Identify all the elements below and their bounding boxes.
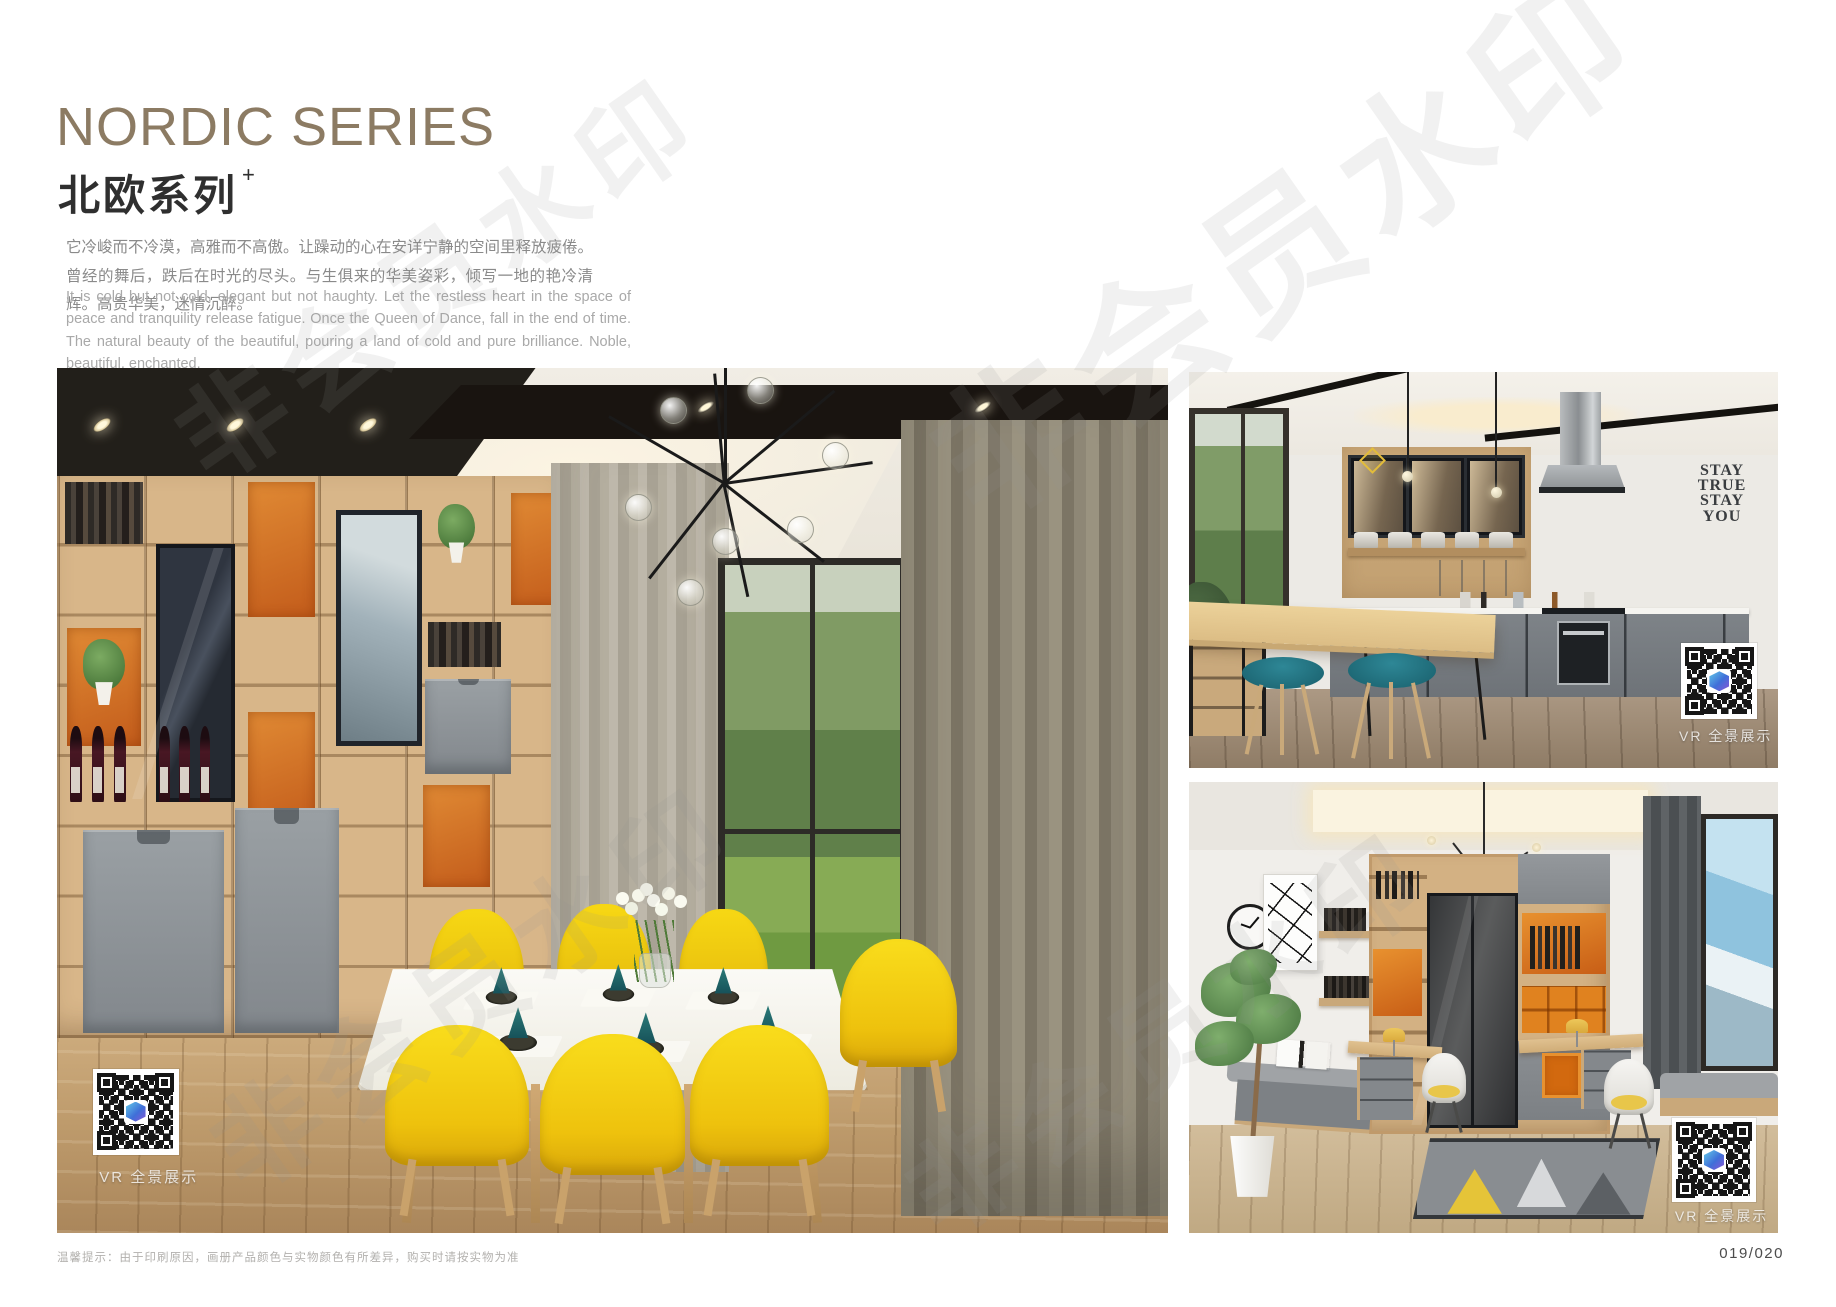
jar xyxy=(1354,532,1378,548)
desk-lamp xyxy=(1383,1028,1405,1042)
jar xyxy=(1388,532,1412,548)
kitchen-photo: STAY TRUE STAY YOU xyxy=(1189,372,1778,768)
leaning-picture-frames xyxy=(1276,1039,1331,1070)
window-seat-cushion xyxy=(1660,1073,1778,1100)
qr-finder-icon xyxy=(1685,647,1704,666)
glass-bulb-icon xyxy=(625,494,652,521)
window-seat-base xyxy=(1660,1098,1778,1116)
table-leg xyxy=(531,1084,540,1223)
gray-upper-cabinet xyxy=(1518,854,1610,904)
wall-art-text: STAY TRUE STAY YOU xyxy=(1684,463,1761,524)
pendant-bulb-icon xyxy=(1491,487,1502,498)
stool-leg xyxy=(1280,684,1284,755)
stool-leg xyxy=(1411,682,1431,758)
page-title: NORDIC SERIES xyxy=(56,96,495,158)
potted-plant xyxy=(438,504,475,549)
chair-back xyxy=(540,1034,684,1175)
wall-art-line: STAY xyxy=(1684,463,1761,478)
teal-bar-stool xyxy=(1242,657,1324,752)
dining-chair-near xyxy=(385,1025,529,1215)
wine-bottle xyxy=(159,726,170,802)
counter-items xyxy=(1460,592,1637,608)
glass-door xyxy=(1351,458,1406,535)
vr-qr-code xyxy=(93,1069,179,1155)
chair-legs xyxy=(701,1159,818,1216)
spotlight-icon xyxy=(91,418,115,432)
place-setting xyxy=(473,984,530,1008)
jar xyxy=(1489,532,1513,548)
wall-art-line: YOU xyxy=(1684,509,1761,524)
chair-legs xyxy=(850,1060,948,1112)
catalog-page: NORDIC SERIES 北欧系列+ 它冷峻而不冷漠，高雅而不高傲。让躁动的心… xyxy=(0,0,1836,1307)
orange-desk-cube xyxy=(1542,1053,1580,1098)
glass-vase xyxy=(639,953,671,988)
glass-bulb-icon xyxy=(712,528,739,555)
vr-cube-logo-icon xyxy=(124,1100,148,1124)
chandelier-rod xyxy=(608,416,724,485)
dining-room-photo: VR 全景展示 xyxy=(57,368,1168,1233)
vr-panorama-label: VR 全景展示 xyxy=(1675,1206,1768,1226)
chair-back xyxy=(690,1025,829,1166)
vr-cube-logo-icon xyxy=(1707,669,1731,693)
yellow-cushion xyxy=(1611,1095,1647,1109)
mirror-panel xyxy=(336,510,422,746)
place-setting xyxy=(590,981,647,1005)
vr-qr-code xyxy=(1681,643,1757,719)
wine-bottle xyxy=(114,726,126,802)
orange-shelf-cell xyxy=(1373,949,1421,1016)
gray-cabinet-door xyxy=(83,830,224,1032)
desk-lamp xyxy=(1566,1019,1588,1033)
dining-chair-near xyxy=(540,1034,684,1224)
shelf-books xyxy=(1324,976,1368,999)
wine-bottle xyxy=(70,726,82,802)
wall-art-line: TRUE xyxy=(1684,478,1761,493)
wine-bottle xyxy=(179,726,190,802)
chair-back xyxy=(385,1025,529,1166)
glass-bulb-icon xyxy=(822,442,849,469)
white-desk-chair xyxy=(1604,1059,1654,1149)
glass-bulb-icon xyxy=(677,579,704,606)
place-setting xyxy=(695,984,752,1008)
page-number: 019/020 xyxy=(1719,1245,1784,1262)
orange-shelf-cell xyxy=(1522,913,1606,975)
hanging-utensils xyxy=(1430,560,1518,596)
qr-finder-icon xyxy=(1676,1179,1695,1198)
gray-cabinet-door xyxy=(235,808,339,1033)
footer-disclaimer: 温馨提示：由于印刷原因，画册产品颜色与实物颜色有所差异，购买时请按实物为准 xyxy=(57,1249,520,1265)
bookcase-items xyxy=(1376,871,1419,899)
pendant-cord xyxy=(1407,372,1409,475)
spotlight-icon xyxy=(223,418,247,432)
orange-cubby-grid xyxy=(1522,986,1606,1034)
bulb-icon xyxy=(1532,843,1541,852)
orange-shelf-cell xyxy=(423,785,491,886)
spotlight-icon xyxy=(971,401,995,413)
qr-finder-icon xyxy=(1676,1122,1695,1141)
chandelier-stem xyxy=(724,368,727,482)
page-title-cn-text: 北欧系列 xyxy=(58,172,238,219)
range-hood-control xyxy=(1539,487,1624,493)
white-desk-chair xyxy=(1422,1053,1466,1134)
rug-triangle xyxy=(1576,1172,1630,1214)
spotlight-icon xyxy=(356,418,380,432)
yellow-cushion xyxy=(1428,1085,1460,1098)
chair-legs xyxy=(396,1159,517,1216)
dining-chair-near xyxy=(690,1025,829,1215)
white-tulips xyxy=(616,892,629,905)
stool-leg xyxy=(1245,684,1264,755)
jar xyxy=(1421,532,1445,548)
dark-curtain xyxy=(1643,796,1702,1089)
jar xyxy=(1455,532,1479,548)
qr-finder-icon xyxy=(97,1073,116,1092)
wall-shelf xyxy=(1319,998,1375,1005)
wine-bottle xyxy=(200,726,211,802)
stool-leg xyxy=(1351,682,1371,758)
vr-cube-logo-icon xyxy=(1702,1148,1726,1172)
stool-leg xyxy=(1301,684,1320,755)
chair-legs xyxy=(1607,1113,1651,1149)
teal-bar-stool xyxy=(1348,653,1436,756)
wall-art-line: STAY xyxy=(1684,493,1761,508)
qr-finder-icon xyxy=(1735,647,1754,666)
orange-shelf-cell xyxy=(248,482,316,617)
glass-bulb-icon xyxy=(747,377,774,404)
vr-panorama-label: VR 全景展示 xyxy=(1679,726,1772,746)
vr-panorama-label: VR 全景展示 xyxy=(99,1166,198,1187)
rug-triangle xyxy=(1517,1159,1566,1208)
intro-paragraph-en: It is cold but not cold, elegant but not… xyxy=(66,286,631,376)
qr-finder-icon xyxy=(155,1073,174,1092)
study-room-photo: VR 全景展示 xyxy=(1189,782,1778,1233)
rug-triangle xyxy=(1447,1169,1501,1214)
glass-bulb-icon xyxy=(787,516,814,543)
chair-legs xyxy=(1424,1101,1463,1133)
stool-leg xyxy=(1389,682,1393,759)
books-row xyxy=(65,482,143,544)
wine-bottles xyxy=(70,726,143,802)
potted-plant xyxy=(83,639,125,690)
chair-legs xyxy=(552,1167,673,1224)
open-shelf xyxy=(1348,548,1525,556)
shelf-books xyxy=(1530,926,1581,969)
desk-drawer-pedestal xyxy=(1357,1057,1413,1120)
books-row xyxy=(428,622,501,667)
bulb-icon xyxy=(1427,836,1436,845)
chandelier-rod xyxy=(648,483,725,580)
pendant-cord xyxy=(1495,372,1497,491)
flower-vase xyxy=(613,896,696,983)
page-title-cn: 北欧系列+ xyxy=(58,162,258,223)
range-hood-chimney xyxy=(1560,392,1601,467)
geometric-rug xyxy=(1413,1138,1660,1219)
qr-finder-icon xyxy=(1733,1122,1752,1141)
wall-shelf xyxy=(1319,931,1375,938)
glass-door xyxy=(1409,458,1464,535)
dining-chair-end xyxy=(840,939,957,1112)
range-hood xyxy=(1539,465,1624,489)
wine-bottle xyxy=(92,726,104,802)
wine-bottles xyxy=(159,726,227,802)
chandelier xyxy=(579,368,868,653)
chair-back xyxy=(840,939,957,1067)
qr-finder-icon xyxy=(97,1131,116,1150)
vr-qr-code xyxy=(1672,1118,1756,1202)
glass-bulb-icon xyxy=(660,397,687,424)
shelf-books xyxy=(1324,908,1365,931)
shelf-jars xyxy=(1354,532,1513,548)
sky-window xyxy=(1701,814,1778,1071)
qr-finder-icon xyxy=(1685,696,1704,715)
built-in-oven xyxy=(1557,621,1610,684)
title-plus-mark: + xyxy=(242,162,258,187)
gray-cabinet-door xyxy=(425,679,511,775)
